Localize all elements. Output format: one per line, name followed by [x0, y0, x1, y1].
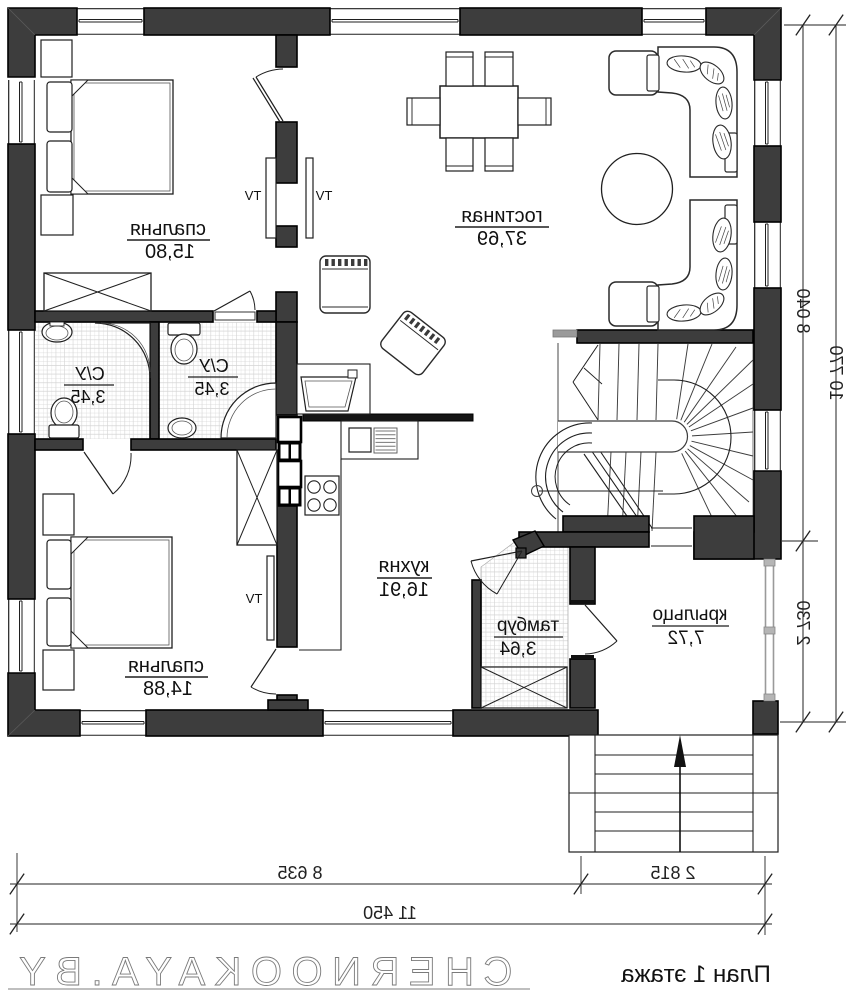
- svg-text:TV: TV: [315, 188, 332, 203]
- svg-text:8 040: 8 040: [793, 288, 813, 333]
- svg-text:TV: TV: [244, 188, 261, 203]
- svg-text:CHERNOOKAYA.BY: CHERNOOKAYA.BY: [10, 950, 513, 994]
- svg-text:7,72: 7,72: [668, 628, 705, 649]
- svg-text:15,80: 15,80: [145, 241, 195, 263]
- svg-text:8 635: 8 635: [277, 863, 322, 883]
- svg-text:кухня: кухня: [379, 555, 430, 577]
- svg-text:3,45: 3,45: [194, 379, 229, 399]
- svg-text:2 815: 2 815: [650, 863, 695, 883]
- svg-text:спальня: спальня: [128, 655, 204, 677]
- svg-text:крыльцо: крыльцо: [653, 604, 728, 625]
- svg-text:План 1 этажа: План 1 этажа: [620, 961, 770, 988]
- svg-text:гостиная: гостиная: [461, 205, 542, 227]
- svg-text:С/У: С/У: [75, 364, 105, 384]
- svg-text:10 770: 10 770: [826, 345, 846, 400]
- svg-text:37,69: 37,69: [477, 228, 527, 250]
- svg-text:16,91: 16,91: [379, 579, 429, 601]
- svg-text:TV: TV: [245, 591, 262, 606]
- svg-text:14,88: 14,88: [143, 678, 193, 700]
- svg-text:С/У: С/У: [199, 356, 229, 376]
- svg-text:тамбур: тамбур: [497, 615, 559, 636]
- svg-text:спальня: спальня: [130, 218, 206, 240]
- svg-text:11 450: 11 450: [363, 903, 417, 923]
- svg-text:2 730: 2 730: [793, 600, 813, 645]
- svg-text:3,45: 3,45: [70, 387, 105, 407]
- svg-text:3,64: 3,64: [499, 639, 536, 660]
